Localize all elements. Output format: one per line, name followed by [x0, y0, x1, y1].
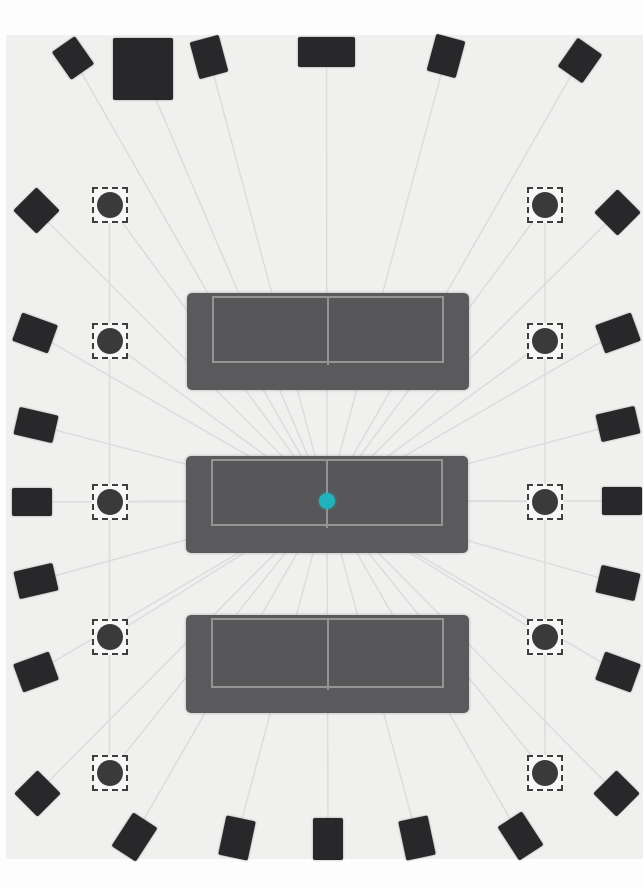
- height-right-1-speaker-driver-circle-icon: [532, 192, 558, 218]
- sofa-rear-seat-divider: [327, 618, 329, 690]
- height-right-5-speaker-driver-circle-icon: [532, 760, 558, 786]
- height-left-3-speaker[interactable]: [92, 484, 128, 520]
- height-left-5-speaker[interactable]: [92, 755, 128, 791]
- height-right-2-speaker[interactable]: [527, 323, 563, 359]
- height-left-4-speaker[interactable]: [92, 619, 128, 655]
- sofa-rear: [186, 615, 469, 713]
- listening-position-dot[interactable]: [319, 493, 335, 509]
- surround-left-4-speaker[interactable]: [12, 488, 52, 516]
- height-right-4-speaker-driver-circle-icon: [532, 624, 558, 650]
- height-left-2-speaker[interactable]: [92, 323, 128, 359]
- surround-right-4-speaker[interactable]: [602, 487, 642, 515]
- height-left-3-speaker-driver-circle-icon: [97, 489, 123, 515]
- subwoofer[interactable]: [113, 38, 173, 100]
- height-right-2-speaker-driver-circle-icon: [532, 328, 558, 354]
- height-right-1-speaker[interactable]: [527, 187, 563, 223]
- projection-line-group: [32, 52, 623, 839]
- height-left-1-speaker-driver-circle-icon: [97, 192, 123, 218]
- height-left-4-speaker-driver-circle-icon: [97, 624, 123, 650]
- sofa-front-seat-divider: [327, 296, 329, 365]
- height-left-1-speaker[interactable]: [92, 187, 128, 223]
- height-left-5-speaker-driver-circle-icon: [97, 760, 123, 786]
- height-right-3-speaker[interactable]: [527, 484, 563, 520]
- height-right-5-speaker[interactable]: [527, 755, 563, 791]
- height-right-4-speaker[interactable]: [527, 619, 563, 655]
- sofa-front: [187, 293, 469, 390]
- height-left-2-speaker-driver-circle-icon: [97, 328, 123, 354]
- center-channel-speaker[interactable]: [298, 37, 355, 67]
- speaker-layout-canvas: [0, 0, 643, 888]
- height-right-3-speaker-driver-circle-icon: [532, 489, 558, 515]
- rear-center-speaker[interactable]: [313, 818, 343, 860]
